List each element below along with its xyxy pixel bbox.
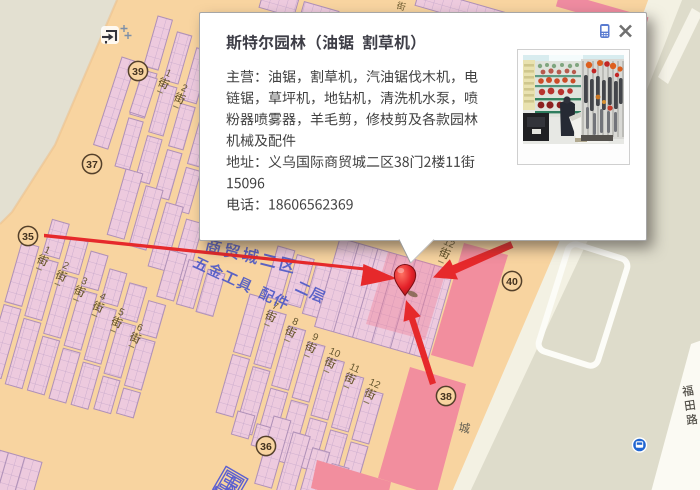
svg-text:40: 40 xyxy=(506,276,518,288)
svg-text:35: 35 xyxy=(22,231,34,243)
svg-text:38: 38 xyxy=(440,391,452,403)
svg-text:36: 36 xyxy=(260,441,272,453)
svg-text:39: 39 xyxy=(132,66,144,78)
svg-text:37: 37 xyxy=(86,159,98,171)
